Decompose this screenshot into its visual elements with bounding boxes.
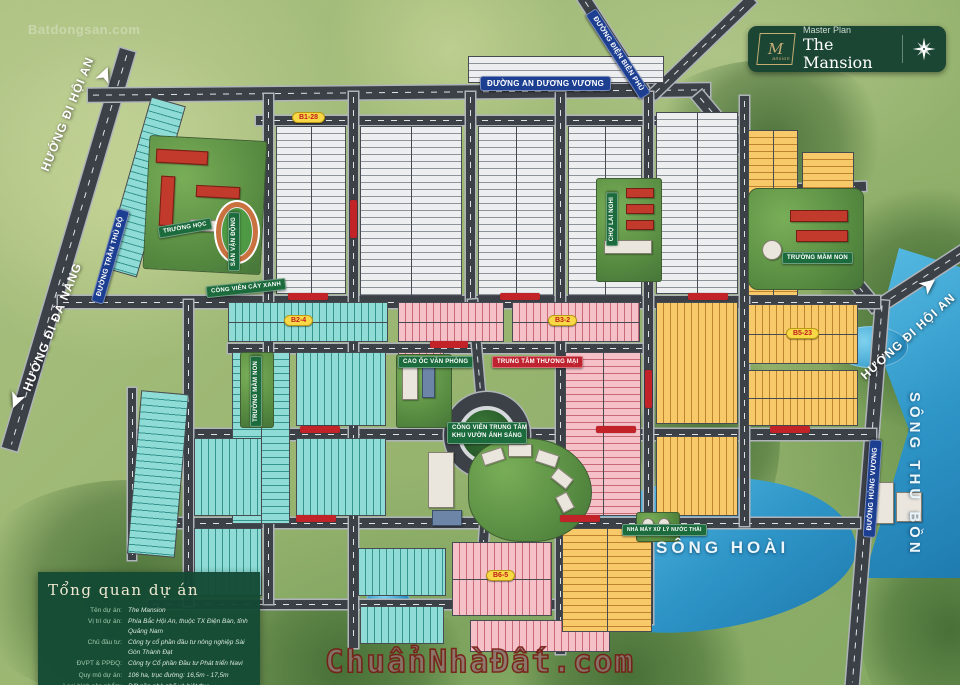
- block-lots: [748, 370, 858, 426]
- amenity-badge-wastewater: NHÀ MÁY XỬ LÝ NƯỚC THẢI: [622, 524, 707, 536]
- school-building: [159, 176, 176, 227]
- road-internal: [184, 300, 193, 606]
- amenity-badge-lai-nghi-market: CHỢ LAI NGHI: [606, 192, 618, 246]
- street-name-marker: [296, 515, 336, 522]
- the-mansion-logo: M ansion: [756, 33, 795, 65]
- kindergarten-building: [796, 230, 848, 242]
- amenity-badge-kindergarten: TRƯỜNG MẦM NON: [782, 252, 853, 264]
- block-lots: [358, 548, 446, 596]
- central-park-line2: KHU VƯỜN ÁNH SÁNG: [452, 433, 522, 439]
- overview-row: Tên dự án: The Mansion: [48, 606, 250, 615]
- school-building: [156, 149, 209, 166]
- overview-label: Vị trí dự án:: [48, 617, 122, 636]
- amenity-badge-mall: TRUNG TÂM THƯƠNG MẠI: [492, 356, 583, 368]
- block-code-badge: B3-2: [548, 315, 577, 326]
- block-lots: [296, 438, 386, 516]
- corner-watermark: Batdongsan.com: [28, 22, 140, 37]
- overview-value: Phía Bắc Hội An, thuộc TX Điện Bàn, tỉnh…: [128, 617, 250, 636]
- kindergarten-building: [762, 240, 782, 260]
- street-name-marker: [430, 341, 468, 348]
- overview-value: The Mansion: [128, 606, 250, 615]
- label-song-thu-bon: SÔNG THU BỒN: [906, 392, 923, 557]
- block-lots: [194, 438, 262, 516]
- logo-caption: ansion: [772, 56, 790, 62]
- block-code-badge: B6-5: [486, 570, 515, 581]
- residential-podium: [432, 510, 462, 526]
- masterplan-banner: M ansion Master Plan The Mansion: [748, 26, 946, 72]
- block-code-badge: B2-4: [284, 315, 313, 326]
- block-lots: [296, 352, 386, 426]
- street-name-marker: [596, 426, 636, 433]
- amenity-badge-central-park: CÔNG VIÊN TRUNG TÂM KHU VƯỜN ÁNH SÁNG: [447, 422, 527, 444]
- block-lots: [360, 126, 462, 296]
- block-lots: [360, 606, 444, 644]
- master-plan-map: B1-28 B2-4 B3-2 B5-23 B6-5 TRƯỜNG HỌC SÂ…: [0, 0, 960, 685]
- block-lots: [656, 112, 738, 294]
- market-building: [626, 204, 654, 214]
- office-tower: [422, 366, 435, 398]
- market-building: [626, 188, 654, 198]
- market-building: [626, 220, 654, 230]
- block-lots: [656, 436, 738, 516]
- overview-title: Tổng quan dự án: [48, 581, 250, 599]
- amenity-badge-kindergarten-2: TRƯỜNG MẦM NON: [250, 356, 262, 427]
- central-park-line1: CÔNG VIÊN TRUNG TÂM: [452, 425, 527, 431]
- street-name-marker: [350, 200, 357, 238]
- block-lots: [562, 528, 652, 632]
- street-name-marker: [300, 426, 340, 433]
- residential-tower: [428, 452, 454, 508]
- block-lots: [276, 126, 346, 294]
- compass-icon: [912, 35, 936, 63]
- block-lots: [656, 302, 738, 424]
- amenity-badge-stadium: SÂN VẬN ĐỘNG: [228, 212, 240, 271]
- road-internal: [466, 92, 475, 304]
- block-code-badge: B5-23: [786, 328, 819, 339]
- school-building: [196, 185, 241, 199]
- banner-divider: [902, 35, 903, 63]
- road-badge-an-duong-vuong: ĐƯỜNG AN DƯƠNG VƯƠNG: [480, 76, 611, 91]
- mall-building: [508, 444, 532, 457]
- block-code-badge: B1-28: [292, 112, 325, 123]
- banner-title: The Mansion: [803, 36, 893, 73]
- overview-label: Tên dự án:: [48, 606, 122, 615]
- street-name-marker: [288, 293, 328, 300]
- block-lots: [398, 302, 504, 342]
- street-name-marker: [500, 293, 540, 300]
- label-song-hoai: SÔNG HOÀI: [656, 538, 789, 558]
- street-name-marker: [770, 426, 810, 433]
- street-name-marker: [688, 293, 728, 300]
- block-lots: [478, 126, 554, 296]
- amenity-badge-office: CAO ỐC VĂN PHÒNG: [398, 356, 473, 368]
- kindergarten-building: [790, 210, 848, 222]
- street-name-marker: [645, 370, 652, 408]
- center-watermark: ChuẩnNhàĐất.com: [0, 644, 960, 680]
- street-name-marker: [560, 515, 600, 522]
- overview-row: Vị trí dự án: Phía Bắc Hội An, thuộc TX …: [48, 617, 250, 636]
